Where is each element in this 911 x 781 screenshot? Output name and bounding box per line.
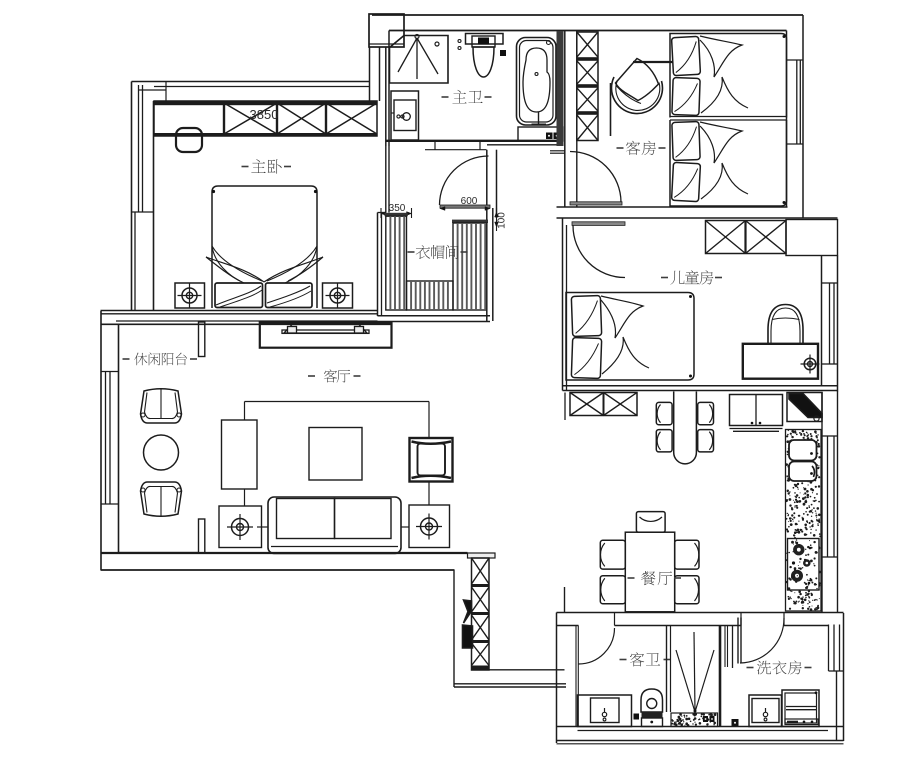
svg-text:100: 100 xyxy=(497,212,508,229)
svg-text:600: 600 xyxy=(461,196,478,207)
svg-text:350: 350 xyxy=(389,203,406,214)
svg-text:3850: 3850 xyxy=(250,107,279,122)
